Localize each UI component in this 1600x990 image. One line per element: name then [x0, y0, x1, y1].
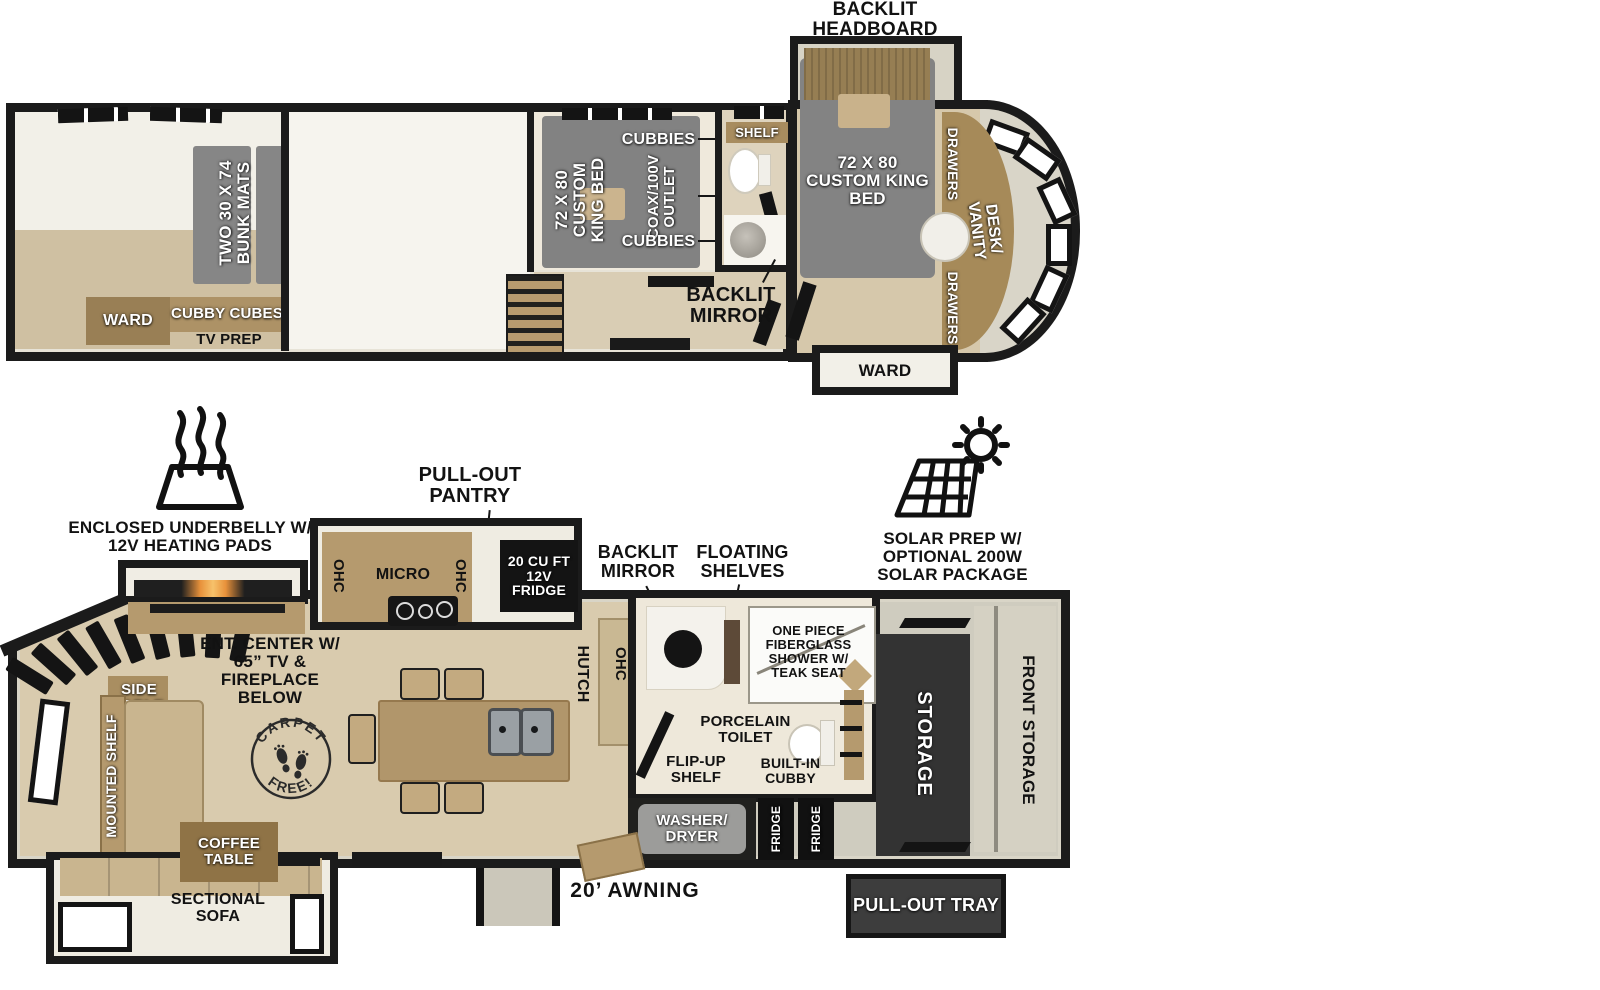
ohc-left-label: OHC	[331, 554, 345, 598]
storage-label: STORAGE	[912, 689, 934, 799]
storage-vent	[899, 842, 971, 852]
backlit-mirror-main-label: BACKLIT MIRROR	[588, 540, 688, 584]
fireplace	[134, 580, 292, 597]
backlit-mirror-label: BACKLIT MIRROR	[672, 283, 790, 329]
backlit-headboard	[804, 48, 930, 100]
bath-wall	[715, 265, 792, 272]
loft-floor	[289, 112, 530, 349]
awning-label: 20’ AWNING	[560, 876, 710, 906]
storage-vent	[899, 618, 971, 628]
fridge-1-label: FRIDGE	[770, 800, 782, 858]
porcelain-toilet-label: PORCELAIN TOILET	[698, 712, 793, 748]
cubby-peg	[840, 752, 862, 757]
cubby-cubes-cabinet: CUBBY CUBES	[170, 297, 284, 332]
bedroom-wall	[527, 103, 534, 272]
island-sink	[488, 708, 522, 756]
coffee-table: COFFEE TABLE	[180, 822, 278, 882]
vessel-sink	[664, 630, 702, 668]
front-storage-label: FRONT STORAGE	[1019, 655, 1037, 805]
skylight	[150, 107, 222, 124]
bottom-wall-window	[352, 852, 442, 866]
sink	[730, 222, 766, 258]
front-storage-area	[974, 606, 1056, 852]
burner	[436, 601, 453, 618]
dining-chair	[348, 714, 376, 764]
solar-prep-label: SOLAR PREP W/ OPTIONAL 200W SOLAR PACKAG…	[870, 525, 1035, 589]
skylight	[734, 106, 784, 119]
slide-window	[58, 902, 132, 952]
skylight	[58, 107, 128, 123]
drawers-lower-label: DRAWERS	[945, 270, 961, 346]
carpet-free-badge: CARPET FREE!	[248, 716, 334, 802]
solar-prep-icon	[893, 415, 1013, 525]
rv-floorplan: BACKLIT HEADBOARD TWO 30 X 74 BUNK MATS …	[0, 0, 1600, 990]
front-storage-wall	[994, 606, 998, 852]
floating-shelves-label: FLOATING SHELVES	[690, 540, 795, 584]
ward-front-label: WARD	[830, 355, 940, 387]
pillow	[838, 94, 890, 128]
entry-steps	[476, 868, 560, 926]
heating-pads-icon	[150, 405, 250, 513]
fridge-2-label: FRIDGE	[810, 800, 822, 858]
sink-drain	[531, 726, 538, 733]
pantry-area	[472, 532, 500, 622]
skylight	[562, 108, 672, 120]
dining-chair	[444, 668, 484, 700]
cubby-peg	[840, 700, 862, 705]
island-sink	[520, 708, 554, 756]
dining-chair	[444, 782, 484, 814]
cubbies-bottom-label: CUBBIES	[617, 232, 700, 252]
floating-shelves	[724, 620, 740, 684]
cubby-peg	[840, 726, 862, 731]
mounted-shelf-label: MOUNTED SHELF	[103, 696, 119, 856]
micro-label: MICRO	[358, 560, 448, 590]
sink-drain	[499, 726, 506, 733]
tv-prep-label: TV PREP	[175, 330, 283, 350]
bunk-mat	[256, 146, 284, 284]
stairs	[506, 274, 564, 354]
pull-out-pantry-label: PULL-OUT PANTRY	[395, 462, 545, 510]
front-window	[1046, 224, 1072, 266]
hutch-ohc-label: OHC	[613, 642, 627, 686]
burner	[418, 604, 433, 619]
ent-center-label: ENT. CENTER W/ 65” TV & FIREPLACE BELOW	[195, 640, 345, 702]
washer-dryer: WASHER/ DRYER	[638, 804, 746, 854]
vanity-stool	[920, 212, 970, 262]
flip-up-shelf-label: FLIP-UP SHELF	[656, 750, 736, 790]
drawers-upper-label: DRAWERS	[945, 126, 961, 202]
footprint-icon	[273, 743, 309, 780]
burner	[396, 602, 414, 620]
dining-chair	[400, 782, 440, 814]
built-in-cubby-label: BUILT-IN CUBBY	[748, 752, 833, 790]
tv-65	[150, 604, 285, 613]
slide-window	[290, 894, 324, 954]
fridge-20cuft: 20 CU FT 12V FRIDGE	[500, 540, 578, 612]
toilet	[728, 148, 762, 194]
ohc-right-label: OHC	[453, 554, 467, 598]
hutch-label: HUTCH	[574, 642, 590, 706]
shelf-cabinet: SHELF	[726, 122, 788, 143]
backlit-headboard-label: BACKLIT HEADBOARD	[800, 0, 950, 40]
bath-wall	[715, 103, 722, 270]
pull-out-tray: PULL-OUT TRAY	[846, 874, 1006, 938]
shower-label: ONE PIECE FIBERGLASS SHOWER W/ TEAK SEAT	[756, 610, 861, 694]
king-bed-front-label: 72 X 80 CUSTOM KING BED	[805, 150, 930, 212]
dining-chair	[400, 668, 440, 700]
bunk-room-wall	[281, 110, 289, 351]
king-bed-mid-label: 72 X 80 CUSTOM KING BED	[550, 155, 610, 245]
bunk-mats-label: TWO 30 X 74 BUNK MATS	[215, 158, 255, 268]
underbelly-label: ENCLOSED UNDERBELLY W/ 12V HEATING PADS	[60, 514, 320, 560]
sectional-sofa-label: SECTIONAL SOFA	[152, 888, 284, 928]
toilet-tank	[758, 154, 771, 186]
ward-cabinet: WARD	[86, 297, 170, 345]
floor-rug	[610, 338, 690, 350]
